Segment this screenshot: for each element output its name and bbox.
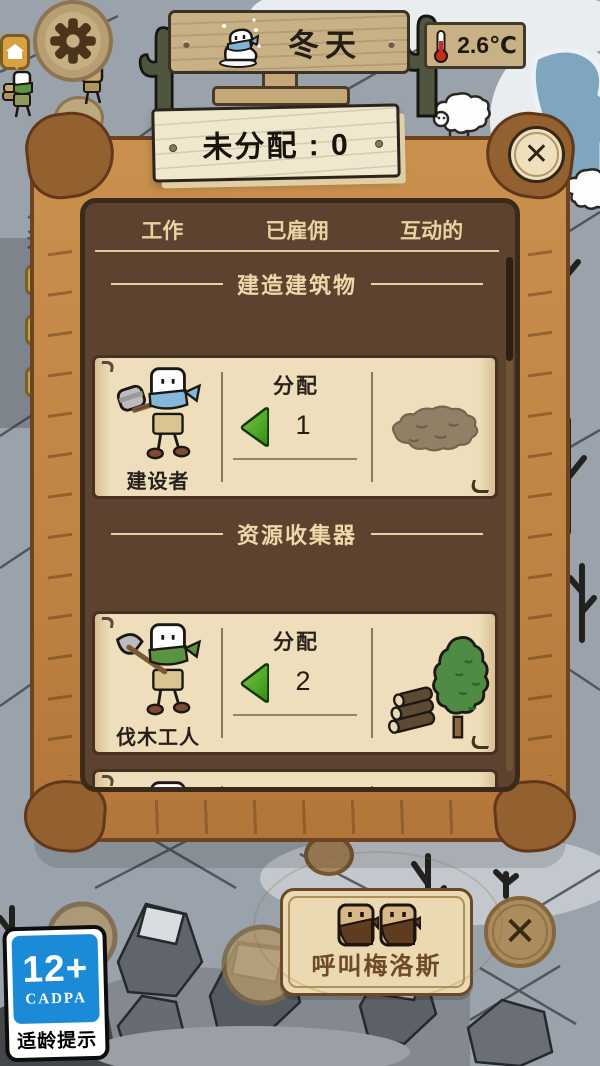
home-icon — [8, 51, 22, 59]
melos-characters-icon — [283, 899, 470, 951]
section-line — [111, 533, 223, 535]
section-line — [111, 283, 223, 285]
worker-name: 伐木工人 — [95, 721, 221, 750]
section-title: 建造建筑物 — [237, 268, 357, 300]
tab-hired[interactable]: 已雇佣 — [230, 215, 365, 245]
gear-icon — [49, 17, 97, 65]
assign-label: 分配 — [221, 626, 371, 656]
scrollbar-thumb[interactable] — [506, 257, 513, 361]
temperature-value: 2.6℃ — [457, 32, 517, 59]
age-rating-org: CADPA — [25, 990, 87, 1009]
close-icon: ✕ — [503, 912, 537, 952]
assign-label: 分配 — [221, 784, 371, 792]
close-icon: ✕ — [524, 140, 549, 170]
card-divider — [371, 786, 373, 792]
section-header-build: 建造建筑物 — [85, 269, 509, 299]
worker-card-partial: 分配 — [92, 769, 498, 792]
worker-panel: 工作 已雇佣 互动的 建造建筑物 — [80, 198, 520, 792]
tab-interactive[interactable]: 互动的 — [364, 215, 499, 245]
unassigned-sign: 未分配 : 0 — [151, 103, 400, 182]
worker-name: 建设者 — [95, 465, 221, 494]
dirt-patch-icon — [371, 366, 498, 494]
age-rating-value: 12+ — [22, 949, 89, 988]
call-melos-label: 呼叫梅洛斯 — [283, 946, 470, 981]
assign-label: 分配 — [221, 370, 371, 400]
worker-card-lumberjack: 伐木工人 分配 2 — [92, 611, 498, 755]
decrease-assign-button[interactable] — [239, 406, 269, 448]
settings-button[interactable] — [33, 0, 113, 82]
sign-crossbar — [212, 86, 350, 106]
lumberjack-character-icon — [99, 618, 219, 718]
builder-character-icon — [99, 362, 219, 462]
snowman-icon — [216, 16, 262, 68]
nail — [169, 144, 177, 152]
modal-close-button[interactable]: ✕ — [508, 126, 565, 183]
season-label: 冬天 — [288, 20, 362, 65]
nail — [183, 41, 190, 48]
assigned-count: 1 — [273, 410, 333, 441]
unassigned-label: 未分配 : 0 — [202, 119, 350, 166]
villager-sprite — [2, 70, 42, 122]
count-underline — [233, 714, 357, 716]
section-title: 资源收集器 — [237, 518, 357, 550]
footer-close-button[interactable]: ✕ — [484, 896, 556, 968]
logs-and-tree-icon — [371, 622, 498, 750]
season-sign: 冬天 — [168, 10, 410, 74]
thermometer-icon — [433, 29, 449, 63]
decrease-assign-button[interactable] — [239, 662, 269, 704]
tab-bar: 工作 已雇佣 互动的 — [95, 215, 499, 245]
age-rating-badge: 12+ CADPA 适龄提示 — [2, 925, 109, 1063]
tab-divider — [95, 250, 499, 252]
section-line — [371, 533, 483, 535]
age-rating-caption: 适龄提示 — [14, 1025, 101, 1054]
sheep-icon — [434, 93, 490, 137]
count-underline — [233, 458, 357, 460]
age-rating-block: 12+ CADPA — [11, 934, 99, 1024]
worker-card-builder: 建设者 分配 1 — [92, 355, 498, 499]
nail — [388, 41, 395, 48]
section-header-resources: 资源收集器 — [85, 519, 509, 549]
assigned-count: 2 — [273, 666, 333, 697]
tab-work[interactable]: 工作 — [95, 215, 230, 245]
temperature-sign: 2.6℃ — [424, 22, 526, 69]
call-melos-button[interactable]: 呼叫梅洛斯 — [280, 888, 473, 996]
nail — [375, 140, 383, 148]
worker-character-icon — [99, 776, 219, 792]
home-indicator-button[interactable] — [0, 34, 30, 70]
section-line — [371, 283, 483, 285]
game-screen: 通 — [0, 0, 600, 1066]
modal-shadow — [34, 842, 566, 868]
